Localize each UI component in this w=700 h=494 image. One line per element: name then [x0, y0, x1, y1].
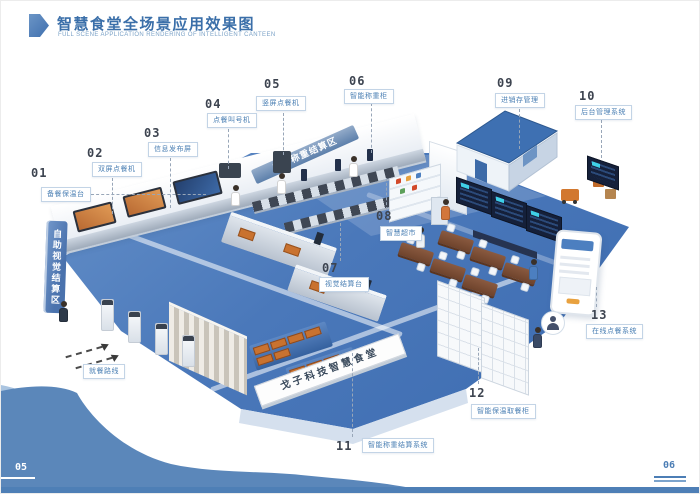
callout-12-number: 12 — [469, 386, 485, 400]
callout-10-label: 后台管理系统 — [575, 105, 632, 120]
weigh-pos-screen — [301, 169, 307, 181]
callout-01-label: 备餐保温台 — [41, 187, 91, 202]
call-number-machine — [219, 163, 241, 178]
menu-screen-2 — [122, 187, 166, 218]
callout-03-leader — [170, 158, 171, 208]
forklift — [561, 189, 579, 201]
callout-04-label: 点餐叫号机 — [207, 113, 257, 128]
weigh-pos-screen — [335, 159, 341, 171]
callout-02-number: 02 — [87, 146, 103, 160]
callout-05-label: 竖屏点餐机 — [256, 96, 306, 111]
page-number-right-rule — [654, 476, 686, 478]
online-order-phone — [549, 229, 602, 317]
callout-05-number: 05 — [264, 77, 280, 91]
person-figure — [349, 156, 358, 180]
callout-07-leader — [340, 223, 341, 261]
person-figure — [277, 173, 286, 197]
page-number-right-rule — [654, 480, 686, 482]
cargo-box — [605, 189, 616, 199]
callout-09-leader — [519, 109, 520, 149]
callout-06-number: 06 — [349, 74, 365, 88]
vertical-order-machine — [273, 151, 291, 173]
user-avatar-icon — [541, 311, 565, 335]
turnstile-gate — [155, 323, 168, 355]
person-figure — [533, 327, 542, 351]
callout-09-number: 09 — [497, 76, 513, 90]
callout-12-label: 智能保温取餐柜 — [471, 404, 536, 419]
pickup-cabinet — [481, 302, 529, 395]
callout-13-label: 在线点餐系统 — [586, 324, 643, 339]
person-figure — [59, 301, 68, 325]
person-figure — [441, 199, 450, 223]
turnstile-gate — [128, 311, 141, 343]
callout-04-number: 04 — [205, 97, 221, 111]
callout-13-leader — [596, 287, 597, 307]
callout-02-leader — [112, 178, 113, 214]
page-number-left-rule — [1, 477, 35, 479]
vision-zone-banner: 自助视觉结算区 — [43, 221, 67, 314]
callout-06-leader — [371, 103, 372, 153]
page-number-right: 06 — [663, 460, 675, 471]
callout-03-number: 03 — [144, 126, 160, 140]
person-figure — [231, 185, 240, 209]
callout-08-label: 智慧超市 — [380, 226, 422, 241]
route-label: 就餐路线 — [83, 364, 125, 379]
page-number-left: 05 — [15, 462, 27, 473]
callout-01-number: 01 — [31, 166, 47, 180]
callout-11-leader — [352, 353, 353, 437]
callout-05-leader — [283, 113, 284, 155]
callout-02-label: 双屏点餐机 — [92, 162, 142, 177]
weigh-pos-screen — [367, 149, 373, 161]
dashboard-screen — [587, 155, 619, 190]
callout-07-number: 07 — [322, 261, 338, 275]
callout-03-label: 信息发布屏 — [148, 142, 198, 157]
info-display-screen — [172, 170, 223, 205]
callout-12-leader — [478, 348, 479, 384]
turnstile-gate — [101, 299, 114, 331]
callout-01-leader — [91, 194, 206, 195]
callout-10-leader — [601, 120, 602, 158]
route-arrow — [65, 346, 102, 358]
callout-06-label: 智能称重柜 — [344, 89, 394, 104]
infographic-page: 智慧食堂全场景应用效果图 FULL SCENE APPLICATION REND… — [0, 0, 700, 494]
callout-08-number: 08 — [376, 209, 392, 223]
callout-11-label: 智能称重结算系统 — [362, 438, 434, 453]
turnstile-gate — [182, 335, 195, 367]
callout-07-label: 视觉结算台 — [319, 277, 369, 292]
callout-13-number: 13 — [591, 308, 607, 322]
callout-04-leader — [228, 129, 229, 169]
callout-09-label: 进销存管理 — [495, 93, 545, 108]
callout-11-number: 11 — [336, 439, 352, 453]
person-figure — [529, 259, 538, 283]
callout-10-number: 10 — [579, 89, 595, 103]
callout-08-leader — [386, 178, 387, 210]
